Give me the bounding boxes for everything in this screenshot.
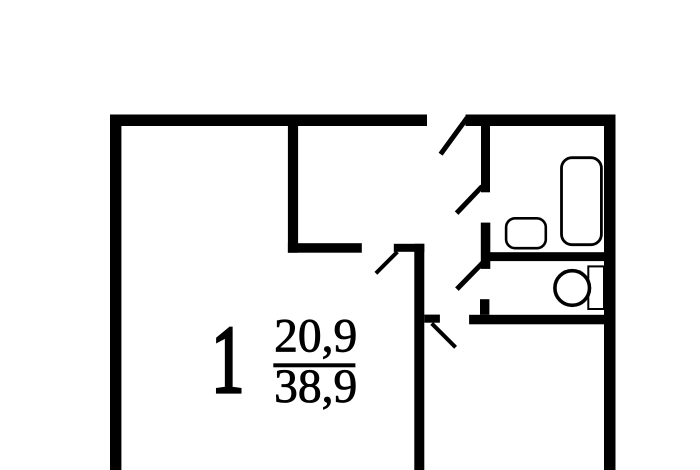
svg-text:1: 1 [211,307,244,413]
svg-text:20,9: 20,9 [274,311,357,363]
svg-text:38,9: 38,9 [274,361,357,413]
